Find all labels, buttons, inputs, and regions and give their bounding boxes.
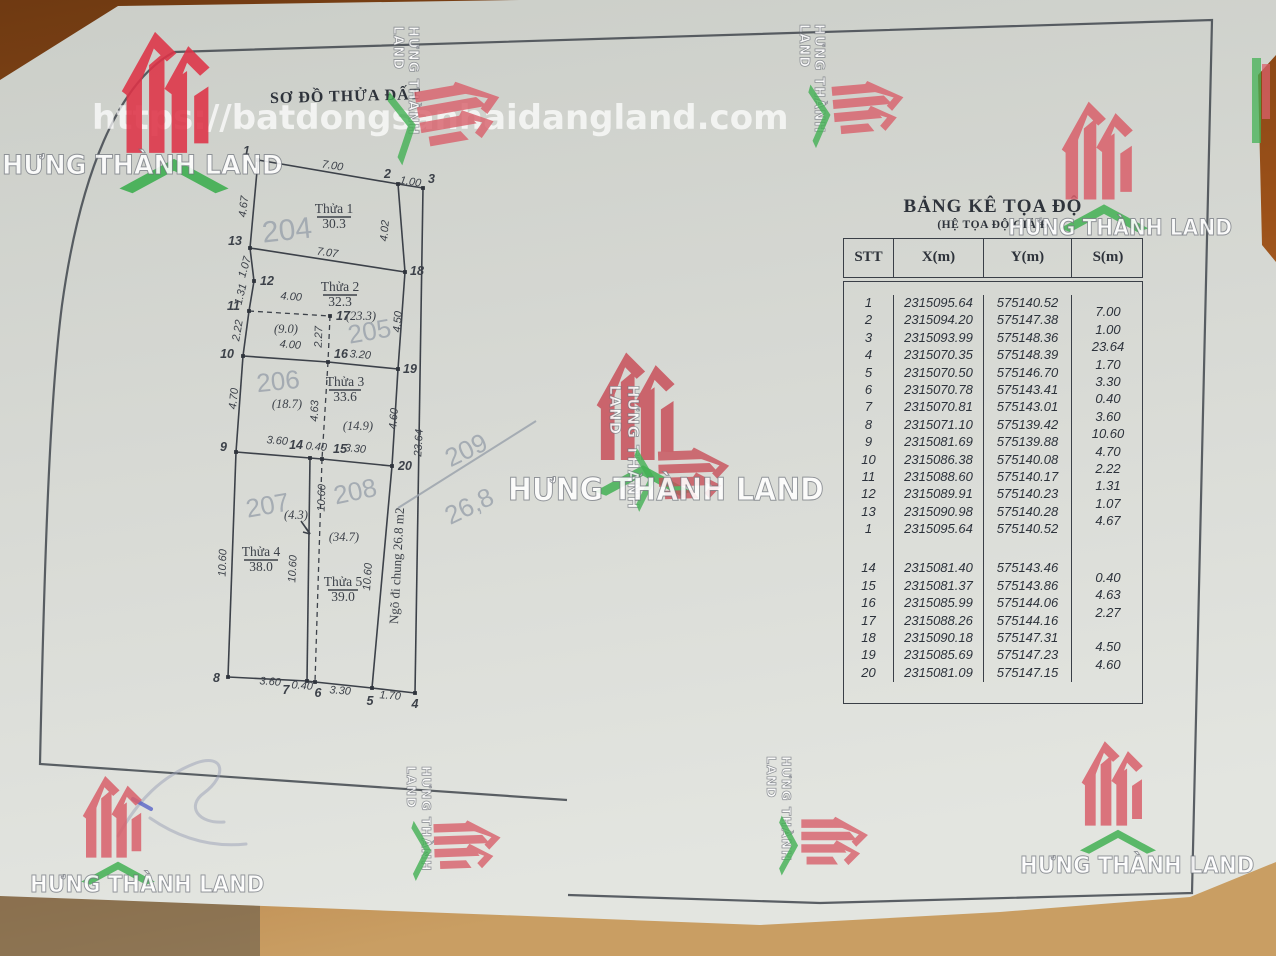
cell-x: 2315093.99 <box>894 330 984 347</box>
plot-name: Thửa 4 <box>242 544 281 559</box>
dimension-label: 23.64 <box>412 429 425 458</box>
cell-stt: 15 <box>844 578 894 595</box>
point-number-19: 19 <box>403 362 417 376</box>
dimension-label: 4.00 <box>279 338 302 352</box>
survey-point-17 <box>328 314 332 318</box>
cell-x: 2315088.26 <box>894 613 984 630</box>
cell-x: 2315070.78 <box>894 382 984 399</box>
cell-y: 575147.31 <box>984 630 1072 647</box>
sub-area-note: (34.7) <box>329 530 359 544</box>
cell-y: 575140.08 <box>984 452 1072 469</box>
point-number-14: 14 <box>289 438 303 452</box>
point-number-12: 12 <box>260 274 274 288</box>
cell-y: 575148.39 <box>984 347 1072 364</box>
cell-stt: 1 <box>844 295 894 312</box>
dimension-label: 0.40 <box>305 440 328 454</box>
cell-x: 2315086.38 <box>894 452 984 469</box>
dimension-label: 0.40 <box>291 679 314 693</box>
cell-stt: 8 <box>844 417 894 434</box>
plot-name: Thửa 2 <box>321 279 359 294</box>
photo-of-cadastral-document: 12313121811171016199141520876547.001.007… <box>0 0 1276 956</box>
survey-point-4 <box>413 691 417 695</box>
survey-point-14 <box>308 456 312 460</box>
cell-stt: 11 <box>844 469 894 486</box>
survey-point-11 <box>247 309 251 313</box>
cell-stt: 9 <box>844 434 894 451</box>
point-number-13: 13 <box>228 234 242 248</box>
cell-y: 575140.52 <box>984 295 1072 312</box>
cell-y: 575139.88 <box>984 434 1072 451</box>
survey-point-1 <box>256 158 260 162</box>
survey-point-16 <box>326 360 330 364</box>
cell-y: 575143.41 <box>984 382 1072 399</box>
cell-y: 575148.36 <box>984 330 1072 347</box>
cell-y: 575147.23 <box>984 647 1072 664</box>
survey-point-18 <box>403 270 407 274</box>
plot-area: 32.3 <box>328 294 352 309</box>
cell-y: 575140.17 <box>984 469 1072 486</box>
cell-x: 2315085.99 <box>894 595 984 612</box>
survey-point-13 <box>248 246 252 250</box>
cell-x: 2315090.98 <box>894 504 984 521</box>
survey-point-15 <box>320 457 324 461</box>
cell-x: 2315071.10 <box>894 417 984 434</box>
cell-stt: 5 <box>844 365 894 382</box>
dimension-label: 4.60 <box>387 407 401 430</box>
cell-y: 575143.01 <box>984 399 1072 416</box>
point-number-10: 10 <box>220 347 234 361</box>
col-header-sm: S(m) <box>1072 239 1144 277</box>
cell-s: 4.60 <box>1072 665 1144 682</box>
dimension-label: 2.27 <box>313 325 326 349</box>
cell-stt: 1 <box>844 521 894 538</box>
dimension-label: 4.70 <box>227 387 241 410</box>
point-number-7: 7 <box>283 683 291 697</box>
coord-row-20: 202315081.09575147.154.60 <box>844 665 1142 682</box>
sub-area-note: (14.9) <box>343 419 373 433</box>
cell-stt: 16 <box>844 595 894 612</box>
cell-x: 2315081.69 <box>894 434 984 451</box>
table-body: 12315095.64575140.5222315094.20575147.38… <box>843 281 1143 704</box>
gap-cell <box>894 538 984 560</box>
cell-x: 2315090.18 <box>894 630 984 647</box>
point-number-2: 2 <box>383 167 391 181</box>
plot-area: 30.3 <box>322 216 346 231</box>
survey-point-9 <box>234 450 238 454</box>
cell-x: 2315070.81 <box>894 399 984 416</box>
cell-x: 2315095.64 <box>894 295 984 312</box>
point-number-20: 20 <box>397 459 412 473</box>
cell-stt: 13 <box>844 504 894 521</box>
cell-stt: 7 <box>844 399 894 416</box>
cell-stt: 12 <box>844 486 894 503</box>
dimension-label: 1.70 <box>379 689 402 703</box>
cell-y: 575139.42 <box>984 417 1072 434</box>
point-number-18: 18 <box>410 264 424 278</box>
cell-stt: 14 <box>844 560 894 577</box>
cell-y: 575144.06 <box>984 595 1072 612</box>
coord-row-1: 12315095.64575140.524.67 <box>844 521 1142 538</box>
cell-y: 575144.16 <box>984 613 1072 630</box>
coordinate-table: BẢNG KÊ TỌA ĐỘ (HỆ TỌA ĐỘ GIẢ Đ STTX(m)Y… <box>843 196 1143 704</box>
dimension-label: 10.60 <box>286 554 299 583</box>
sub-area-note: (18.7) <box>272 397 302 411</box>
cell-s: 2.27 <box>1072 613 1144 630</box>
survey-point-20 <box>390 464 394 468</box>
plot-area: 33.6 <box>333 389 357 404</box>
survey-point-5 <box>370 686 374 690</box>
cropped-logo-sliver-red <box>1262 64 1270 119</box>
cell-y: 575143.86 <box>984 578 1072 595</box>
plot-name: Thửa 5 <box>324 574 363 589</box>
dimension-label: 4.00 <box>280 290 303 304</box>
dimension-label: 3.30 <box>344 442 367 456</box>
survey-point-6 <box>313 680 317 684</box>
dimension-label: 3.60 <box>266 434 289 448</box>
cell-stt: 3 <box>844 330 894 347</box>
col-header-stt: STT <box>844 239 894 277</box>
gap-cell <box>844 538 894 560</box>
cropped-logo-sliver-green <box>1252 58 1261 143</box>
col-header-ym: Y(m) <box>984 239 1072 277</box>
cell-stt: 20 <box>844 665 894 682</box>
cell-y: 575146.70 <box>984 365 1072 382</box>
cell-stt: 18 <box>844 630 894 647</box>
dimension-label: 10.60 <box>316 483 329 512</box>
point-number-4: 4 <box>411 697 419 711</box>
cell-y: 575143.46 <box>984 560 1072 577</box>
cell-y: 575140.52 <box>984 521 1072 538</box>
dimension-label: 4.02 <box>378 220 392 242</box>
dimension-label: 3.20 <box>349 348 372 362</box>
sub-area-note: (9.0) <box>274 322 298 336</box>
gap-cell <box>1072 538 1144 560</box>
cell-y: 575140.28 <box>984 504 1072 521</box>
table-title: BẢNG KÊ TỌA ĐỘ <box>843 196 1143 218</box>
cell-x: 2315085.69 <box>894 647 984 664</box>
cell-x: 2315070.35 <box>894 347 984 364</box>
plot-name: Thửa 3 <box>326 374 365 389</box>
cell-stt: 4 <box>844 347 894 364</box>
coord-row-17: 172315088.26575144.162.27 <box>844 613 1142 630</box>
cell-stt: 2 <box>844 312 894 329</box>
dimension-label: 3.60 <box>259 675 282 689</box>
point-number-1: 1 <box>243 144 250 158</box>
handwritten-number: 204 <box>260 212 313 250</box>
cell-x: 2315089.91 <box>894 486 984 503</box>
cell-y: 575147.15 <box>984 665 1072 682</box>
plot-area: 38.0 <box>249 559 273 574</box>
cell-stt: 17 <box>844 613 894 630</box>
survey-point-19 <box>396 367 400 371</box>
cell-x: 2315081.09 <box>894 665 984 682</box>
dimension-label: 4.63 <box>309 399 322 422</box>
table-subtitle: (HỆ TỌA ĐỘ GIẢ Đ <box>843 219 1143 231</box>
cell-stt: 6 <box>844 382 894 399</box>
survey-point-12 <box>252 279 256 283</box>
plot-area: 39.0 <box>331 589 355 604</box>
cell-stt: 10 <box>844 452 894 469</box>
cell-x: 2315081.37 <box>894 578 984 595</box>
table-header-row: STTX(m)Y(m)S(m) <box>843 238 1143 278</box>
dimension-label: 3.30 <box>329 684 352 698</box>
plot-name: Thửa 1 <box>315 201 353 216</box>
col-header-xm: X(m) <box>894 239 984 277</box>
survey-point-8 <box>226 675 230 679</box>
gap-cell <box>984 538 1072 560</box>
cell-stt: 19 <box>844 647 894 664</box>
survey-point-3 <box>421 186 425 190</box>
dimension-label: 10.60 <box>217 548 230 577</box>
point-number-8: 8 <box>213 671 220 685</box>
point-number-5: 5 <box>367 694 375 708</box>
point-number-9: 9 <box>220 440 227 454</box>
point-number-3: 3 <box>428 172 435 186</box>
dimension-label: 10.60 <box>361 562 375 591</box>
point-number-6: 6 <box>315 686 323 700</box>
cell-s: 4.67 <box>1072 521 1144 538</box>
cell-x: 2315081.40 <box>894 560 984 577</box>
cell-x: 2315094.20 <box>894 312 984 329</box>
cell-y: 575147.38 <box>984 312 1072 329</box>
table-gap <box>844 538 1142 560</box>
point-number-16: 16 <box>334 347 349 361</box>
survey-point-10 <box>241 354 245 358</box>
cell-x: 2315088.60 <box>894 469 984 486</box>
cell-x: 2315070.50 <box>894 365 984 382</box>
handwritten-number: 206 <box>255 364 301 398</box>
cell-x: 2315095.64 <box>894 521 984 538</box>
cell-y: 575140.23 <box>984 486 1072 503</box>
dimension-label: 4.50 <box>391 310 405 333</box>
